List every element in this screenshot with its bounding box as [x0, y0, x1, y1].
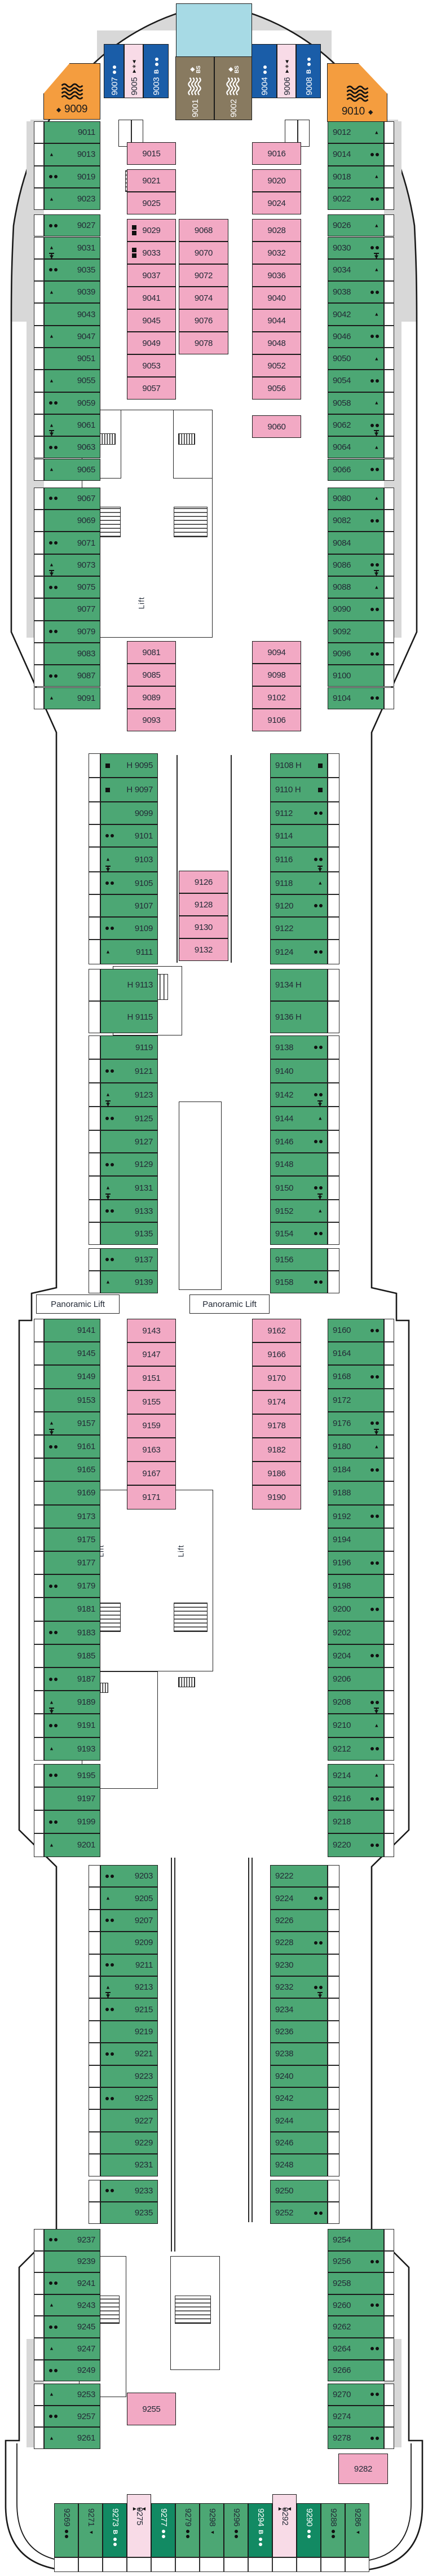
cabin-9058: 9058▲: [328, 392, 384, 414]
cabin-9098: 9098: [252, 664, 301, 686]
cabin-bay: [89, 1107, 100, 1130]
triangle-icon: ▲: [105, 1896, 111, 1901]
cabin-9234: 9234: [270, 1998, 328, 2020]
cabin-icons: [314, 1093, 323, 1096]
panoramic-lift-label: Panoramic Lift: [189, 1294, 270, 1314]
two-dots-icon: [49, 1724, 58, 1727]
cabin-bay: [89, 1248, 100, 1271]
two-dots-icon: [314, 1046, 323, 1049]
cabin-number: 9122: [271, 924, 293, 933]
cabin-bay: [89, 2021, 100, 2043]
cabin-9296: 9296: [224, 2503, 248, 2557]
cabin-number: 9030: [328, 243, 351, 253]
cabin-icons: [49, 268, 58, 271]
cabin-icons: [370, 424, 379, 427]
cabin-9084: 9084: [328, 532, 384, 554]
cabin-icons: ▲: [49, 196, 54, 201]
cabin-bay: [34, 1412, 44, 1435]
cabin-icons: ▲: [374, 1773, 379, 1778]
cabin-bay: [34, 2338, 44, 2360]
cabin-9021: 9021: [127, 169, 176, 192]
cabin-9115: H 9115: [100, 1001, 158, 1033]
cabin-number: 9140: [271, 1067, 293, 1076]
square-icon: [105, 788, 110, 792]
cabin-9173: 9173: [44, 1505, 100, 1528]
cabin-icons: ▲: [49, 1700, 54, 1705]
cabin-number: 9035: [77, 265, 100, 275]
cabin-9269: 9269: [54, 2503, 78, 2557]
cabin-number: 9056: [267, 384, 285, 393]
cabin-9078: 9078: [179, 332, 228, 354]
two-dots-icon: [314, 1941, 323, 1945]
cabin-number: 9031: [77, 243, 100, 253]
cabin-9060: 9060: [252, 415, 301, 438]
cabin-number: 9150: [271, 1183, 293, 1193]
cabin-icons: [370, 1747, 379, 1750]
cabin-number: 9198: [328, 1581, 351, 1591]
triangle-icon: ▲: [105, 1985, 111, 1990]
triangle-icon: ▲: [374, 174, 379, 179]
cabin-bay: [384, 554, 394, 576]
two-dots-icon: [105, 1919, 114, 1922]
triangle-icon: ▲: [105, 857, 111, 862]
cabin-bay: [89, 2202, 100, 2224]
panoramic-lift-label: Panoramic Lift: [36, 1294, 120, 1314]
cabin-number: 9003: [152, 77, 161, 95]
cabin-number: 9038: [328, 287, 351, 297]
cabin-bay: [384, 2384, 394, 2406]
cabin-9244: 9244: [270, 2109, 328, 2131]
cabin-number: 9041: [142, 293, 160, 303]
cabin-9040: 9040: [252, 287, 301, 309]
cabin-icons: ▲: [49, 563, 54, 568]
cabin-icons: ▲: [49, 467, 54, 472]
cabin-bay: [34, 665, 44, 687]
cabin-number: 9223: [135, 2072, 157, 2081]
two-dots-icon: [49, 2369, 58, 2372]
cabin-9083: 9083: [44, 643, 100, 665]
cabin-9219: 9219: [100, 2021, 158, 2043]
cabin-icons: [105, 1919, 114, 1922]
two-dots-icon: [308, 2530, 311, 2538]
two-dots-icon: [370, 1421, 379, 1425]
cabin-icons: [370, 1797, 379, 1801]
cabin-icons: [314, 1232, 323, 1235]
cabin-number: 9088: [328, 582, 351, 592]
cabin-number: 9233: [135, 2186, 157, 2196]
cabin-bay: [384, 598, 394, 620]
cabin-number: 9239: [77, 2257, 100, 2266]
cabin-9218: 9218: [328, 1810, 384, 1833]
cabin-number: 9023: [77, 194, 100, 204]
wall-line: [171, 1858, 172, 2252]
cabin-number: 9025: [142, 199, 160, 208]
cabin-9029: 9029: [127, 219, 176, 242]
cabin-icons: ▲: [49, 1421, 54, 1426]
cabin-bay: [89, 802, 100, 824]
cabin-number: 9128: [195, 900, 213, 910]
cabin-number: 9169: [77, 1488, 100, 1498]
two-dots-icon: [49, 497, 58, 500]
cabin-bay: [384, 1412, 394, 1435]
cabin-bay: [34, 1528, 44, 1551]
two-dots-icon: [49, 2325, 58, 2329]
cabin-9261: ▲9261: [44, 2427, 100, 2449]
two-dots-icon: [105, 2008, 114, 2011]
cabin-9183: 9183: [44, 1621, 100, 1644]
cabin-bay: [384, 1764, 394, 1787]
cabin-icons: [314, 2211, 323, 2215]
cabin-bay: [34, 1598, 44, 1621]
cabin-bay: [89, 2109, 100, 2131]
cabin-number: 9155: [142, 1397, 160, 1407]
cabin-9223: 9223: [100, 2065, 158, 2087]
cabin-number: 9132: [195, 945, 213, 955]
cabin-icons: [370, 1421, 379, 1425]
cabin-number: 9141: [77, 1326, 100, 1335]
two-dots-icon: [49, 630, 58, 633]
cabin-bay: [34, 2384, 44, 2406]
cabin-9222: 9222: [270, 1865, 328, 1887]
cabin-number: 9039: [77, 287, 100, 297]
cabin-9258: 9258: [328, 2272, 384, 2294]
cabin-number: 9211: [135, 1960, 157, 1970]
two-dots-icon: [370, 2303, 379, 2307]
cabin-9243: ▲9243: [44, 2294, 100, 2316]
square-icon: [132, 225, 136, 230]
cabin-number: 9151: [142, 1373, 160, 1383]
cabin-9014: 9014: [328, 143, 384, 165]
cabin-bay: [34, 1319, 44, 1342]
cabin-bay: [89, 847, 100, 872]
cabin-9155: 9155: [127, 1390, 176, 1414]
cabin-9099: 9099: [100, 802, 158, 824]
two-dots-icon: [370, 2347, 379, 2350]
cabin-9080: 9080▲: [328, 488, 384, 510]
glasses-asterisk-icon: ►∗◄: [131, 60, 138, 74]
cabin-number: 9237: [77, 2235, 100, 2245]
cabin-bay: [384, 1481, 394, 1504]
cabin-number: 9071: [77, 538, 100, 548]
cabin-9082: 9082: [328, 510, 384, 532]
cabin-number: 9087: [77, 671, 100, 681]
bow-sun-deck: [176, 3, 252, 58]
cabin-9025: 9025: [127, 192, 176, 214]
cabin-9031: ▲9031: [44, 237, 100, 259]
cabin-number: 9277: [159, 2508, 169, 2526]
cabin-bay: [89, 1200, 100, 1222]
cabin-9260: 9260: [328, 2294, 384, 2316]
cabin-bay: [89, 2180, 100, 2202]
cabin-number: 9110 H: [271, 785, 301, 795]
cabin-number: 9119: [135, 1043, 157, 1052]
cabin-9220: 9220: [328, 1833, 384, 1857]
bs-diamond-label: ◆BS: [189, 66, 202, 73]
two-dots-icon: [105, 1963, 114, 1967]
cabin-icons: ▲: [49, 2392, 54, 2397]
cabin-9097: H 9097: [100, 778, 158, 802]
square-icon: [132, 231, 136, 235]
cabin-9023: ▲9023: [44, 188, 100, 210]
cabin-9063: 9063: [44, 436, 100, 458]
cabin-icons: ▲: [49, 696, 54, 701]
cabin-bay: [384, 532, 394, 554]
cabin-number: 9048: [267, 339, 285, 348]
cabin-bay: [89, 2043, 100, 2065]
cabin-number: 9139: [135, 1278, 157, 1287]
cabin-bay: [384, 326, 394, 348]
cabin-9004: 9004: [251, 44, 277, 98]
cabin-9142: 9142: [270, 1083, 328, 1107]
cabin-9195: 9195: [44, 1764, 100, 1787]
cabin-bay: [89, 1130, 100, 1153]
cabin-9089: 9089: [127, 686, 176, 709]
triangle-icon: ▲: [374, 585, 379, 590]
cabin-bay: [89, 894, 100, 917]
stairs-icon: [174, 507, 208, 537]
cabin-bay: [384, 1787, 394, 1810]
cabin-number: 9243: [77, 2301, 100, 2310]
cabin-number: 9257: [77, 2412, 100, 2421]
cabin-number: 9051: [77, 354, 100, 363]
cabin-number: 9212: [328, 1744, 351, 1754]
cabin-bay: [328, 940, 339, 964]
cabin-9093: 9093: [127, 709, 176, 731]
cabin-number: 9091: [77, 694, 100, 703]
triangle-icon: ▲: [374, 130, 379, 135]
cabin-9154: 9154: [270, 1222, 328, 1245]
two-dots-icon: [105, 1258, 114, 1261]
waves-icon: [226, 77, 242, 96]
cabin-number: 9261: [77, 2433, 100, 2443]
cabin-icons: [49, 674, 58, 678]
two-dots-icon: [155, 58, 158, 66]
cabin-number: 9157: [77, 1419, 100, 1428]
cabin-9184: 9184: [328, 1458, 384, 1481]
cabin-number: 9186: [267, 1469, 285, 1478]
stern-balcony: [175, 2557, 200, 2572]
cabin-icons: ▲: [49, 2346, 54, 2351]
cabin-9047: ▲9047: [44, 326, 100, 348]
two-dots-icon: [113, 65, 116, 74]
cabin-number: 9014: [328, 150, 351, 159]
cabin-9077: 9077: [44, 598, 100, 620]
cabin-9137: 9137: [100, 1248, 158, 1271]
cabin-number: 9245: [77, 2322, 100, 2332]
cabin-number: 9229: [135, 2138, 157, 2148]
triangle-icon: ▲: [49, 467, 54, 472]
two-dots-icon: [314, 858, 323, 861]
cabin-number: 9100: [328, 671, 351, 681]
cabin-number: 9204: [328, 1651, 351, 1661]
triangle-icon: ▲: [105, 950, 111, 955]
cabin-icons: ▲: [105, 1092, 111, 1098]
cabin-number: 9135: [135, 1229, 157, 1239]
cabin-9255: 9255: [127, 2393, 176, 2425]
triangle-icon: ▲: [49, 423, 54, 428]
cabin-number: 9026: [328, 221, 351, 230]
triangle-icon: ▲: [374, 312, 379, 317]
cabin-number: 9002: [229, 99, 239, 117]
cabin-9197: 9197: [44, 1787, 100, 1810]
cabin-bay: [34, 2294, 44, 2316]
cabin-number: 9188: [328, 1488, 351, 1498]
cabin-9239: 9239: [44, 2251, 100, 2273]
cabin-bay: [328, 2132, 339, 2154]
cabin-icons: [370, 1515, 379, 1518]
cabin-9253: ▲9253: [44, 2384, 100, 2406]
two-dots-icon: [370, 424, 379, 427]
triangle-icon: ▲: [374, 267, 379, 273]
wall-line: [174, 1858, 175, 2252]
cabin-9275: 9275►∗◄: [127, 2494, 151, 2557]
double-square-icon: [132, 248, 136, 258]
cabin-bay: [34, 1691, 44, 1714]
cabin-9129: 9129: [100, 1153, 158, 1176]
cabin-bay: [328, 824, 339, 847]
cabin-9149: 9149: [44, 1365, 100, 1388]
cabin-bay: [328, 969, 339, 1001]
cabin-bay: [384, 1505, 394, 1528]
cabin-icons: [314, 904, 323, 907]
cabin-number: 9055: [77, 376, 100, 385]
cabin-9290: 9290: [297, 2503, 321, 2557]
cabin-number: 9111: [136, 947, 157, 957]
cabin-number: 9106: [267, 716, 285, 725]
cabin-number: 9009: [64, 103, 87, 116]
cabin-number: 9262: [328, 2322, 351, 2332]
cabin-bay: [384, 459, 394, 481]
cabin-number: 9192: [328, 1512, 351, 1521]
cabin-9172: 9172: [328, 1389, 384, 1412]
cabin-icons: ▲: [49, 334, 54, 339]
cabin-bay: [384, 188, 394, 210]
cabin-9104: 9104: [328, 687, 384, 709]
cabin-number: 9082: [328, 516, 351, 525]
two-dots-icon: [105, 2189, 114, 2192]
cabin-9041: 9041: [127, 287, 176, 309]
cabin-number: 9170: [267, 1373, 285, 1383]
cabin-9242: 9242: [270, 2087, 328, 2109]
cabin-icons: ▲: [49, 245, 54, 251]
cabin-9074: 9074: [179, 287, 228, 309]
cabin-9210: 9210▲: [328, 1714, 384, 1737]
cabin-9194: 9194: [328, 1528, 384, 1551]
cabin-9165: 9165: [44, 1458, 100, 1481]
cabin-9241: 9241: [44, 2272, 100, 2294]
cabin-9298: 9298▼: [200, 2503, 224, 2557]
cabin-number: 9137: [135, 1255, 157, 1265]
cabin-icons: [49, 2415, 58, 2418]
cabin-icons: [370, 198, 379, 201]
cabin-9279: 9279: [175, 2503, 200, 2557]
cabin-icons: ▲: [317, 881, 323, 886]
cabin-number: 9247: [77, 2344, 100, 2354]
cabin-bay: [384, 1365, 394, 1388]
vent-icon: [178, 433, 195, 445]
diamond-icon: ◆: [56, 106, 61, 113]
diamond-icon: ◆: [189, 67, 196, 71]
cabin-9162: 9162: [252, 1319, 301, 1342]
cabin-bay: [384, 303, 394, 325]
cabin-number: 9172: [328, 1395, 351, 1405]
cabin-bay: [384, 665, 394, 687]
cabin-9216: 9216: [328, 1787, 384, 1810]
cabin-number: 9103: [135, 855, 157, 864]
cabin-icons: ▲: [105, 1985, 111, 1990]
cabin-bay: [34, 459, 44, 481]
wall-line: [251, 1858, 253, 2222]
cabin-9193: ▲9193: [44, 1737, 100, 1761]
cabin-number: 9164: [328, 1349, 351, 1358]
stern-balcony: [272, 2557, 297, 2572]
cabin-9027: 9027: [44, 214, 100, 236]
cabin-number: H 9113: [127, 980, 157, 990]
cabin-number: 9074: [195, 293, 213, 303]
cabin-number: 9174: [267, 1397, 285, 1407]
cabin-icons: [49, 630, 58, 633]
cabin-9056: 9056: [252, 377, 301, 400]
cabin-icons: ▲: [49, 423, 54, 428]
cabin-9159: 9159: [127, 1414, 176, 1438]
cabin-icons: [370, 1654, 379, 1657]
cabin-icons: ▲: [49, 1746, 54, 1752]
b-label: B: [258, 2530, 264, 2534]
cabin-9163: 9163: [127, 1438, 176, 1462]
cabin-9227: 9227: [100, 2109, 158, 2131]
cabin-number: 9107: [135, 901, 157, 911]
cabin-bay: [384, 370, 394, 392]
cabin-9101: 9101: [100, 824, 158, 847]
cabin-bay: [34, 259, 44, 281]
cabin-icons: [49, 1724, 58, 1727]
cabin-number: 9124: [271, 947, 293, 957]
cabin-9232: 9232: [270, 1976, 328, 1998]
cabin-number: 9033: [142, 248, 160, 258]
cabin-9233: 9233: [100, 2180, 158, 2202]
cabin-9111: ▲9111: [100, 940, 158, 964]
cabin-icons: [370, 2347, 379, 2350]
cabin-bay: [34, 326, 44, 348]
cabin-bay: [34, 166, 44, 188]
triangle-icon: ▲: [49, 1842, 54, 1847]
cabin-number: 9078: [195, 339, 213, 348]
cabin-number: 9080: [328, 494, 351, 503]
cabin-bay: [328, 1059, 339, 1083]
cabin-number: 9171: [142, 1493, 160, 1502]
cabin-bay: [89, 1035, 100, 1059]
cabin-icons: [370, 563, 379, 567]
cabin-icons: [105, 2008, 114, 2011]
cabin-number: 9098: [267, 670, 285, 680]
cabin-9100: 9100: [328, 665, 384, 687]
cabin-number: 9143: [142, 1326, 160, 1336]
cabin-number: 9127: [135, 1137, 157, 1147]
cabin-number: 9216: [328, 1794, 351, 1803]
cabin-number: 9254: [328, 2235, 351, 2245]
cabin-bay: [34, 1667, 44, 1691]
cabin-bay: [384, 237, 394, 259]
cabin-icons: [105, 834, 114, 837]
cabin-9202: 9202: [328, 1621, 384, 1644]
cabin-icons: ▲: [374, 267, 379, 273]
cabin-bay: [384, 576, 394, 598]
cabin-number: 9015: [142, 149, 160, 159]
cabin-number: 9168: [328, 1372, 351, 1381]
cabin-bay: [89, 1271, 100, 1293]
two-dots-icon: [49, 268, 58, 271]
cabin-number: 9201: [77, 1840, 100, 1850]
